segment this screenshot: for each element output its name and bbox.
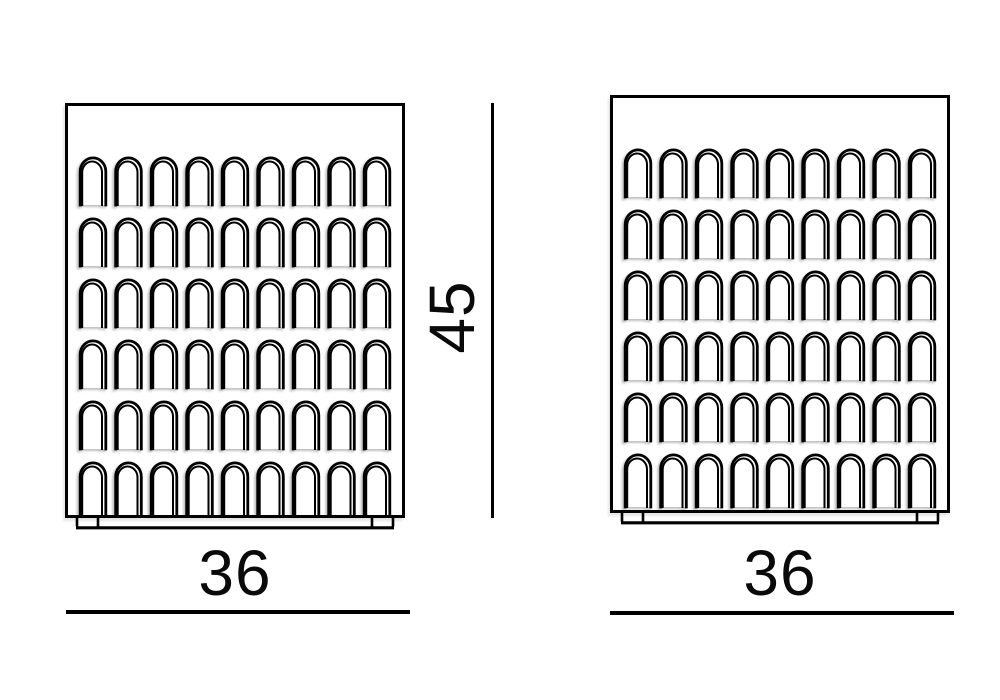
arch-pattern-front [68,106,402,515]
width-dimension-line-side [610,611,954,615]
width-dimension-label-front: 36 [135,543,335,603]
base-feet-side [610,513,950,527]
dimension-drawing: 45 36 36 [0,0,1000,700]
cabinet-front-view [65,103,405,518]
height-dimension-label: 45 [417,217,487,417]
base-feet-front [65,518,405,532]
height-dimension-line [491,103,494,518]
width-dimension-label-side: 36 [680,543,880,603]
width-dimension-line-front [66,610,410,614]
cabinet-side-view [610,95,950,513]
arch-pattern-side [613,98,947,510]
